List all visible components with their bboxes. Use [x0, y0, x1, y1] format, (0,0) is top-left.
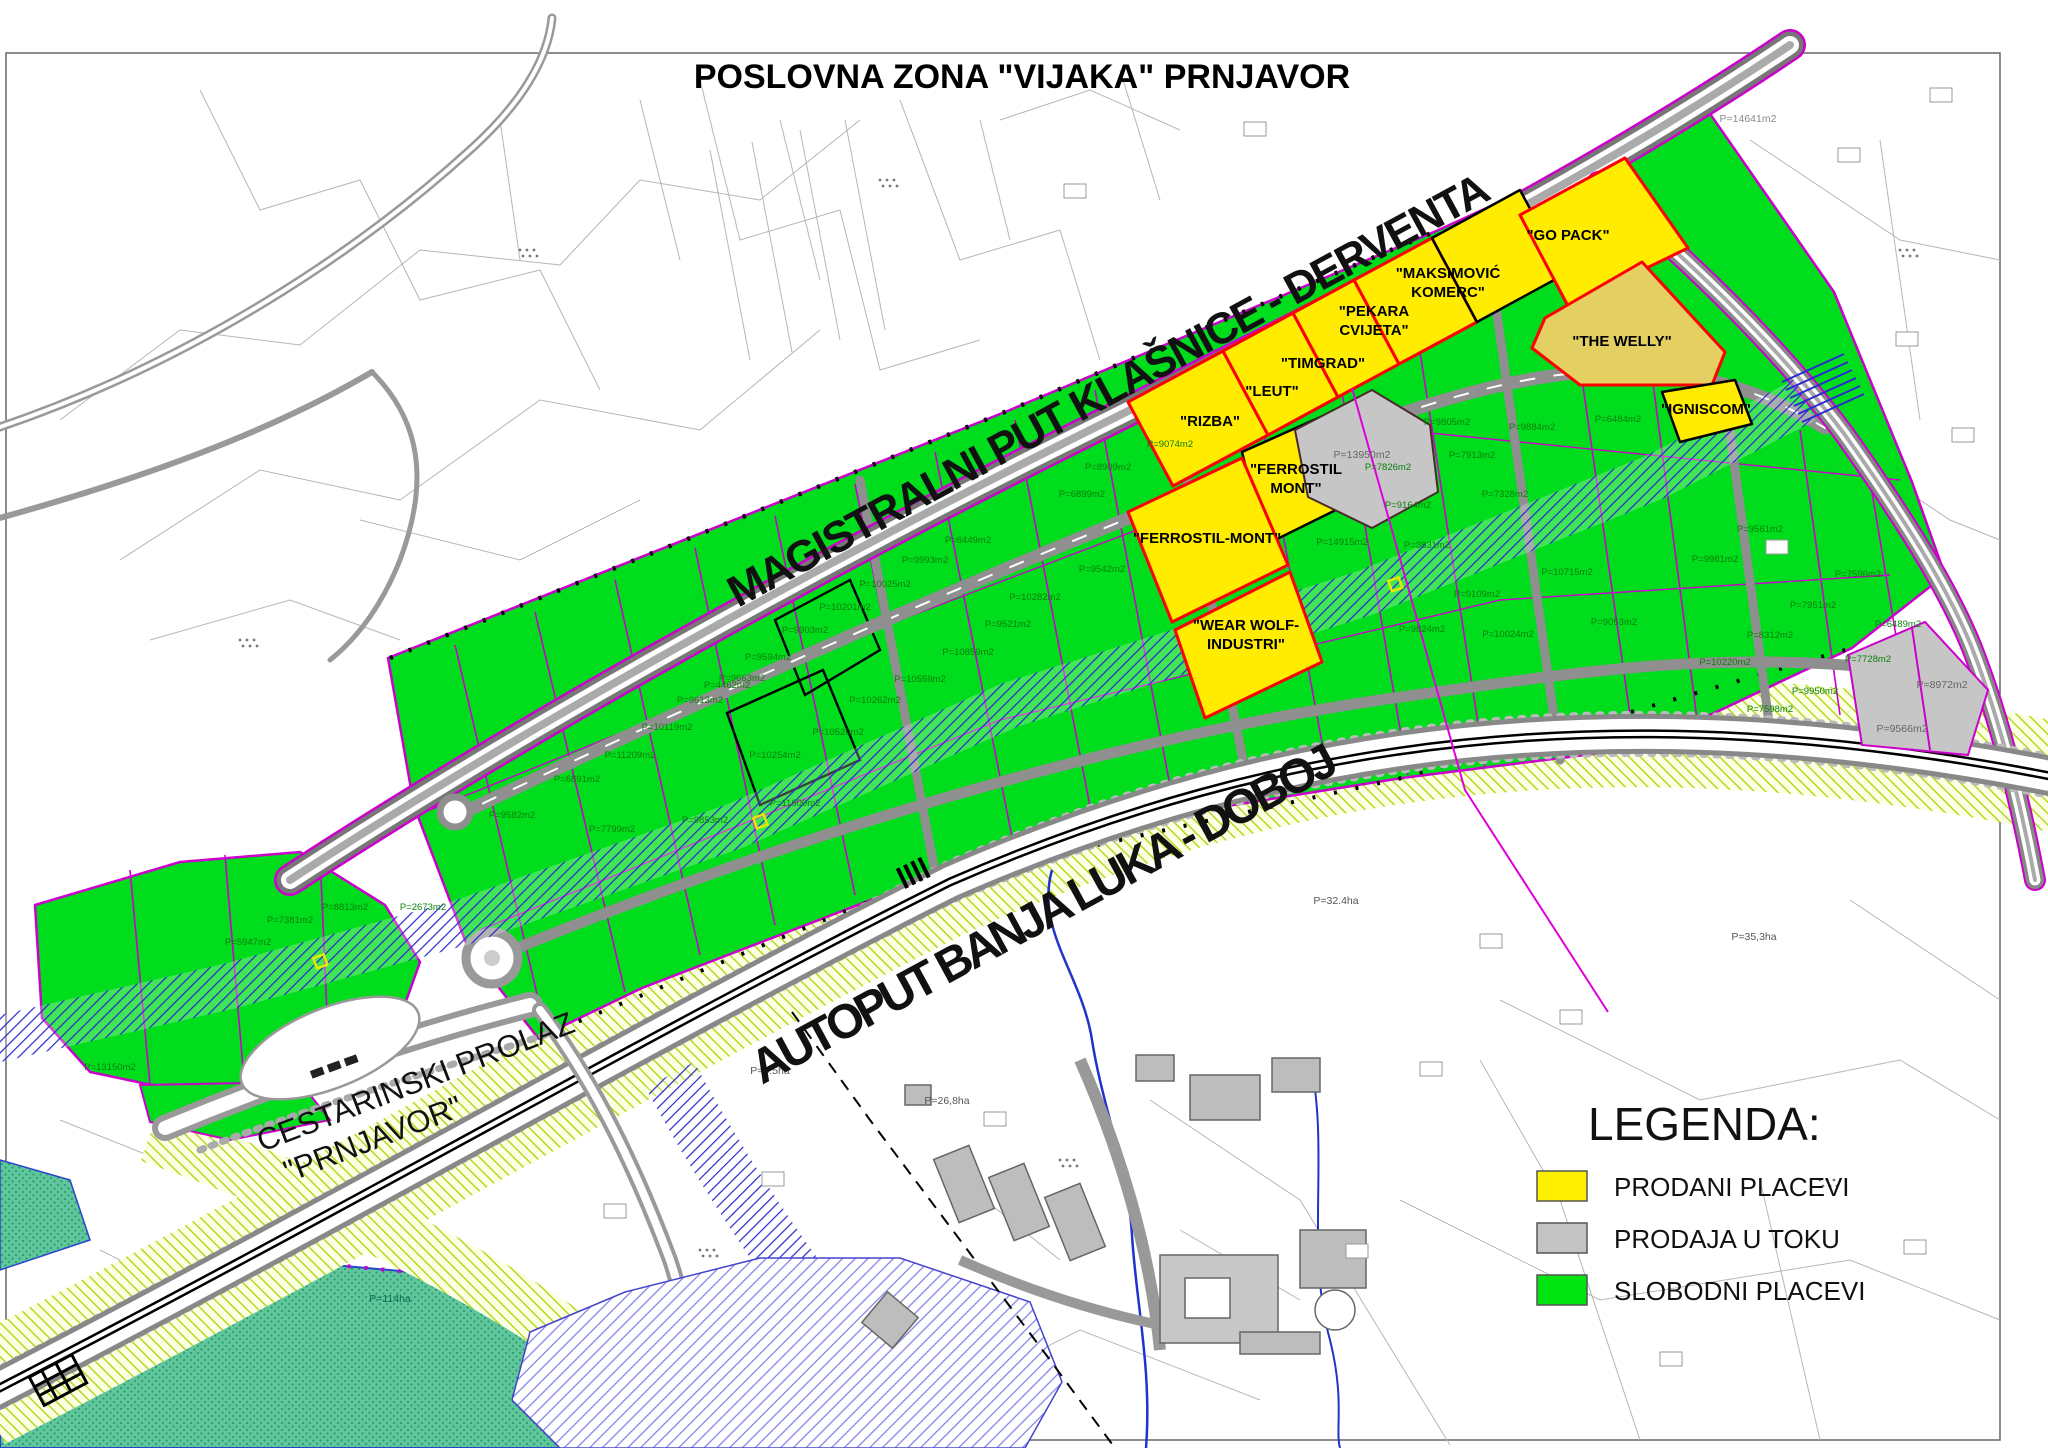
parcel-id-box [1766, 540, 1788, 554]
free-parcel-area-label: P=9613m2 [677, 695, 723, 706]
company-parcel-label: "RIZBA" [1180, 413, 1240, 430]
parcel-id-box [762, 1172, 784, 1186]
free-parcel-area-label: P=9950m2 [1792, 686, 1838, 697]
free-parcel-area-label: P=6449m2 [945, 535, 991, 546]
free-parcel-area-label: P=9824m2 [1399, 624, 1445, 635]
free-parcel-area-label: P=6484m2 [1595, 414, 1641, 425]
free-parcel-area-label: P=14915m2 [1316, 537, 1368, 548]
free-parcel-area-label: P=8813m2 [322, 902, 368, 913]
free-parcel-area-label: P=9521m2 [985, 619, 1031, 630]
free-parcel-area-label: P=7598m2 [1747, 704, 1793, 715]
free-parcel-area-label: P=10119m2 [642, 722, 693, 733]
free-parcel-area-label: P=9594m2 [745, 652, 791, 663]
area-label: P=32.4ha [1313, 895, 1358, 907]
free-parcel-area-label: P=7913m2 [1449, 450, 1495, 461]
free-parcel-area-label: P=9561m2 [1737, 524, 1783, 535]
legend-title: LEGENDA: [1588, 1098, 1821, 1150]
free-parcel-area-label: P=10025m2 [859, 579, 911, 590]
free-parcel-area-label: P=9981m2 [1692, 554, 1738, 565]
free-parcel-area-label: P=13150m2 [84, 1062, 136, 1073]
free-parcel-area-label: P=11209m2 [605, 750, 656, 761]
company-parcel-label: "FERROSTIL-MONT" [1133, 530, 1281, 547]
legend-swatch-pending [1537, 1223, 1587, 1253]
parcel-id-box [984, 1112, 1006, 1126]
free-parcel-area-label: P=7381m2 [267, 915, 313, 926]
parcel-id-box [1930, 88, 1952, 102]
free-parcel-area-label: P=9903m2 [782, 625, 828, 636]
legend-swatch-sold [1537, 1171, 1587, 1201]
free-parcel-area-label: P=10254m2 [749, 750, 801, 761]
area-label: P=13950m2 [1334, 449, 1391, 461]
free-parcel-area-label: P=9053m2 [1591, 617, 1637, 628]
area-label: P=14641m2 [1720, 113, 1777, 125]
free-parcel-area-label: P=3831m2 [1404, 540, 1450, 551]
free-parcel-area-label: P=9853m2 [682, 815, 728, 826]
parcel-id-box [1904, 1240, 1926, 1254]
free-parcel-area-label: P=10520m2 [812, 727, 864, 738]
area-label: P=8972m2 [1916, 679, 1967, 691]
zoning-map: P=9582m2P=6891m2P=11209m2P=10119m2P=9613… [0, 0, 2048, 1448]
company-parcel-label: "TIMGRAD" [1281, 355, 1365, 372]
map-sheet: P=9582m2P=6891m2P=11209m2P=10119m2P=9613… [0, 0, 2048, 1448]
free-parcel-area-label: P=9109m2 [1454, 589, 1500, 600]
free-parcel-area-label: P=5947m2 [225, 937, 271, 948]
free-parcel-area-label: P=10282m2 [1009, 592, 1061, 603]
area-label: P=35,3ha [1731, 931, 1776, 943]
free-parcel-area-label: P=6891m2 [554, 774, 600, 785]
parcel-id-box [604, 1204, 626, 1218]
area-label: P=26,8ha [924, 1095, 969, 1107]
free-parcel-area-label: P=7728m2 [1845, 654, 1891, 665]
parcel-id-box [1952, 428, 1974, 442]
legend-label-sold: PRODANI PLACEVI [1614, 1172, 1850, 1202]
page-title: POSLOVNA ZONA "VIJAKA" PRNJAVOR [694, 58, 1350, 96]
parcel-id-box [1560, 1010, 1582, 1024]
company-parcel-label: "LEUT" [1245, 383, 1298, 400]
free-parcel-area-label: P=6489m2 [1875, 619, 1921, 630]
free-parcel-area-label: P=10262m2 [849, 695, 901, 706]
free-parcel-area-label: P=7951m2 [1790, 600, 1836, 611]
company-parcel-label: "THE WELLY" [1572, 333, 1672, 350]
free-parcel-area-label: P=9884m2 [1509, 422, 1555, 433]
free-parcel-area-label: P=9074m2 [1147, 439, 1193, 450]
parcel-id-box [1896, 332, 1918, 346]
parcel-id-box [1838, 148, 1860, 162]
free-parcel-area-label: P=10220m2 [1699, 657, 1751, 668]
free-parcel-area-label: P=10859m2 [942, 647, 994, 658]
parcel-id-box [1420, 1062, 1442, 1076]
legend-label-free: SLOBODNI PLACEVI [1614, 1276, 1865, 1306]
free-parcel-area-label: P=4462m2 [704, 680, 750, 691]
free-parcel-area-label: P=9993m2 [902, 555, 948, 566]
parcel-id-box [1346, 1244, 1368, 1258]
free-parcel-area-label: P=11600m2 [770, 798, 821, 809]
free-parcel-area-label: P=8909m2 [1085, 462, 1131, 473]
parcel-id-box [1660, 1352, 1682, 1366]
parcel-id-box [1480, 934, 1502, 948]
company-parcel-label: "IGNISCOM" [1661, 401, 1751, 418]
free-parcel-area-label: P=7799m2 [589, 824, 635, 835]
free-parcel-area-label: P=10715m2 [1541, 567, 1593, 578]
free-parcel-area-label: P=7826m2 [1365, 462, 1411, 473]
free-parcel-area-label: P=9164m2 [1385, 500, 1431, 511]
parcel-id-box [1064, 184, 1086, 198]
free-parcel-area-label: P=10201m2 [819, 602, 871, 613]
company-parcel-label: "GO PACK" [1526, 227, 1609, 244]
free-parcel-area-label: P=9805m2 [1424, 417, 1470, 428]
free-parcel-area-label: P=8312m2 [1747, 630, 1793, 641]
free-parcel-area-label: P=7328m2 [1482, 489, 1528, 500]
legend-swatch-free [1537, 1275, 1587, 1305]
free-parcel-area-label: P=7596m2 [1835, 569, 1881, 580]
free-parcel-area-label: P=2673m2 [400, 902, 446, 913]
free-parcel-area-label: P=9542m2 [1079, 564, 1125, 575]
legend-label-pending: PRODAJA U TOKU [1614, 1224, 1840, 1254]
area-label: P=9566m2 [1876, 723, 1927, 735]
free-parcel-area-label: P=9582m2 [489, 810, 535, 821]
free-parcel-area-label: P=10024m2 [1482, 629, 1534, 640]
free-parcel-area-label: P=10559m2 [894, 674, 946, 685]
free-parcel-area-label: P=6899m2 [1059, 489, 1105, 500]
area-label: P=114ha [369, 1293, 411, 1305]
parcel-id-box [1244, 122, 1266, 136]
